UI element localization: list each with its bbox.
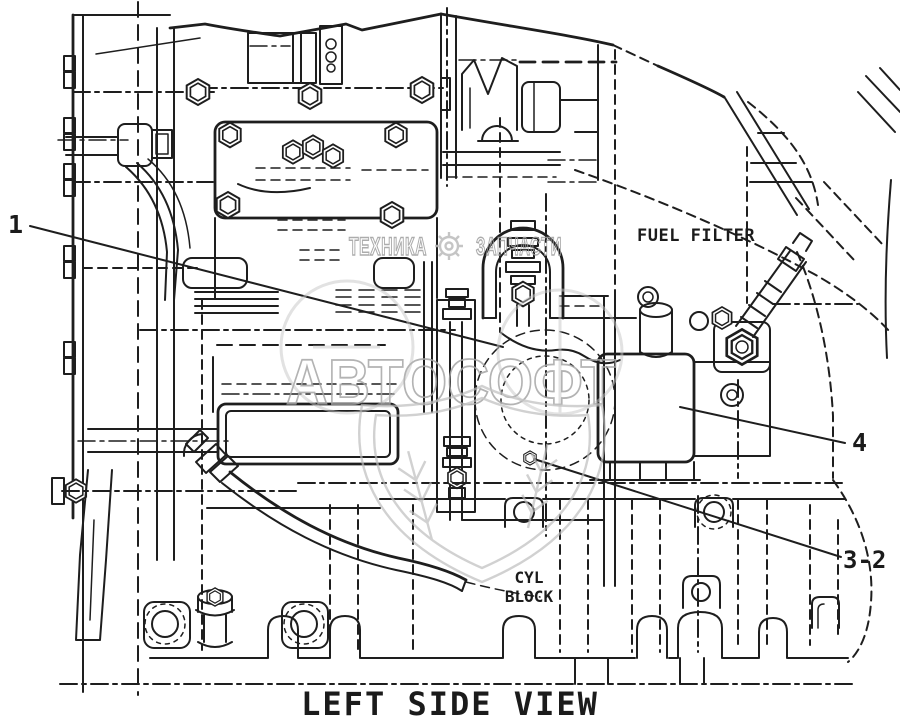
- bottom-bosses: [144, 602, 328, 648]
- engine-top: [96, 14, 443, 88]
- watermark-brand-text: АВТОСОФТ: [286, 346, 616, 418]
- gear-icon: [435, 232, 463, 260]
- callout-1: 1: [8, 210, 23, 239]
- fuel-filter-label: FUEL FILTER: [637, 226, 755, 246]
- engine-line-art: 1 4 3-2 FUEL FILTER CYL BLOCK LEFT SIDE …: [0, 0, 900, 727]
- flange-bolt: [52, 56, 75, 504]
- leader-line-4: [680, 407, 845, 443]
- cyl-block-label-line2: BLOCK: [505, 587, 554, 606]
- watermark: ТЕХНИКА ЗАПЧАСТИ АВТОСОФТ: [281, 232, 622, 582]
- wheat-ear-icon: [515, 441, 560, 531]
- engine-parts-diagram-page: 1 4 3-2 FUEL FILTER CYL BLOCK LEFT SIDE …: [0, 0, 900, 727]
- left-flange: [52, 2, 215, 695]
- head-bolts: [187, 77, 434, 228]
- watermark-text-left: ТЕХНИКА: [349, 233, 427, 261]
- intake-bracket: [441, 8, 560, 186]
- callout-4: 4: [852, 428, 867, 457]
- view-title: LEFT SIDE VIEW: [301, 685, 599, 723]
- bottom-arches: [268, 612, 787, 658]
- callout-3-2: 3-2: [843, 546, 886, 574]
- leader-line-3-2: [534, 459, 841, 557]
- watermark-text-right: ЗАПЧАСТИ: [476, 233, 562, 261]
- cyl-block-label-line1: CYL: [515, 568, 544, 587]
